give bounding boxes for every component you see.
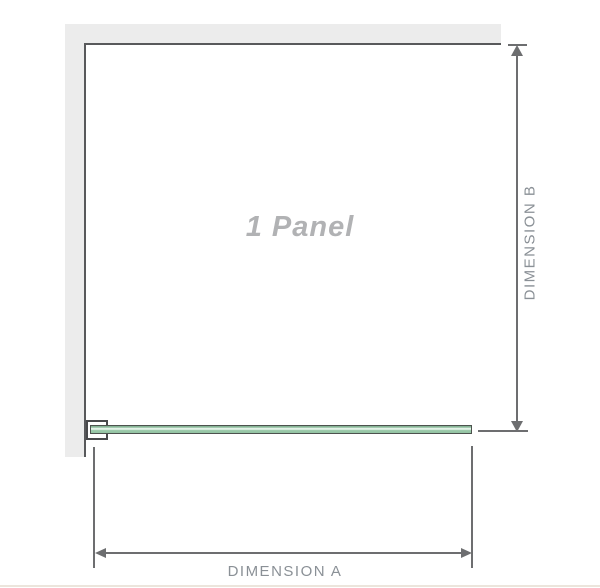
wall-left: [65, 24, 84, 457]
dimension-b-label: DIMENSION B: [522, 178, 539, 308]
panel-count-label: 1 Panel: [180, 211, 420, 244]
page-divider-line: [0, 585, 600, 587]
wall-top-inner-edge: [84, 43, 501, 45]
wall-left-inner-edge: [84, 43, 86, 457]
dimension-a-line: [100, 552, 468, 554]
dimension-a-label: DIMENSION A: [185, 563, 385, 580]
dimension-a-arrow-right-icon: [461, 548, 472, 558]
dimension-b-bottom-tick: [478, 430, 528, 432]
dimension-b-line: [516, 48, 518, 425]
glass-panel: [90, 425, 472, 434]
wall-top: [65, 24, 501, 43]
dimension-a-arrow-left-icon: [95, 548, 106, 558]
dimension-b-arrow-up-icon: [511, 45, 523, 56]
